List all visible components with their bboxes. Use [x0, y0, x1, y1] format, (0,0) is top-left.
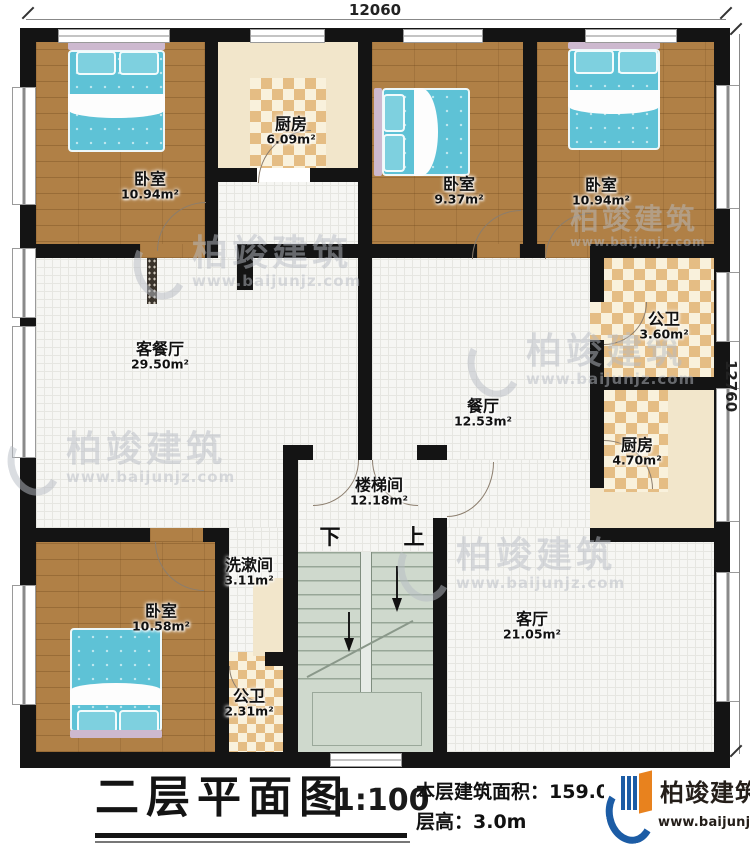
room-name: 卧室 [145, 603, 177, 620]
room-label: 公卫2.31m² [224, 688, 273, 719]
room-area: 3.60m² [639, 328, 688, 342]
room-name: 卧室 [134, 171, 166, 188]
double-bed [374, 88, 470, 176]
room-label: 客餐厅29.50m² [131, 341, 189, 372]
window [58, 29, 170, 43]
room-area: 6.09m² [266, 133, 315, 147]
wall-interior [203, 528, 215, 542]
room-label: 洗漱间3.11m² [224, 557, 273, 588]
room-area: 9.37m² [434, 193, 483, 207]
room-label: 卧室10.94m² [572, 177, 630, 208]
wall-interior [205, 42, 218, 258]
watermark: 柏竣建筑www.baijunjz.com [570, 206, 705, 249]
room-label: 卧室9.37m² [434, 176, 483, 207]
drawing-title: 二层平面图 [95, 776, 350, 820]
window [250, 29, 325, 43]
wall-interior [372, 244, 477, 258]
stair-handrail [360, 552, 372, 692]
room-label: 卧室10.94m² [121, 171, 179, 202]
room-name: 厨房 [275, 116, 307, 133]
room-area: 21.05m² [503, 628, 561, 642]
stair-arrow-stem [348, 612, 350, 638]
double-bed [568, 42, 660, 150]
stair-landing [312, 692, 422, 746]
stairs-up-label: 上 [404, 521, 425, 551]
room-label: 厨房6.09m² [266, 116, 315, 147]
watermark-url: www.baijunjz.com [570, 235, 705, 249]
window [403, 29, 483, 43]
room-name: 卧室 [443, 176, 475, 193]
wall-interior [218, 168, 257, 182]
tick-mark [720, 7, 733, 20]
wall-stairwell-right [433, 445, 447, 460]
window [12, 248, 36, 318]
room-name: 厨房 [621, 437, 653, 454]
dimension-label-right: 12760 [722, 360, 740, 412]
watermark: 柏竣建筑www.baijunjz.com [134, 236, 361, 300]
floor-plan-page: 12060 12760 [0, 0, 750, 845]
room-area: 10.94m² [572, 194, 630, 208]
window [12, 87, 36, 205]
stairs-down-label: 下 [320, 521, 341, 551]
room-label: 餐厅12.53m² [454, 398, 512, 429]
room-area: 10.58m² [132, 620, 190, 634]
tick-mark [22, 7, 35, 20]
double-bed [70, 628, 162, 746]
watermark-text: 柏竣建筑 [456, 538, 625, 574]
room-area: 4.70m² [612, 454, 661, 468]
floor-height-text: 层高：3.0m [416, 807, 526, 834]
room-label: 公卫3.60m² [639, 311, 688, 342]
watermark: 柏竣建筑www.baijunjz.com [8, 432, 235, 496]
room-label: 卧室10.58m² [132, 603, 190, 634]
room-area: 2.31m² [224, 705, 273, 719]
room-name: 楼梯间 [355, 477, 403, 494]
floor-plan-drawing: 12060 12760 [0, 0, 750, 770]
watermark-swoosh-icon [1, 426, 68, 501]
wall-interior [520, 244, 545, 258]
watermark-url: www.baijunjz.com [66, 468, 235, 486]
watermark-text: 柏竣建筑 [570, 206, 705, 235]
room-label: 客厅21.05m² [503, 611, 561, 642]
watermark: 柏竣建筑www.baijunjz.com [398, 538, 625, 602]
title-underline-thin [95, 841, 410, 843]
tick-mark [730, 745, 743, 758]
title-block: 二层平面图 1:100 本层建筑面积：159.06m² 层高：3.0m 柏竣建筑… [0, 770, 750, 845]
window [716, 272, 740, 342]
tick-mark [730, 23, 743, 36]
title-underline [95, 833, 407, 838]
watermark-swoosh-icon [461, 328, 528, 403]
watermark-url: www.baijunjz.com [526, 370, 695, 388]
double-bed [68, 42, 165, 152]
room-name: 卧室 [585, 177, 617, 194]
watermark-swoosh-icon [127, 230, 194, 305]
window [716, 572, 740, 702]
watermark-text: 柏竣建筑 [192, 236, 361, 272]
room-area: 3.11m² [224, 574, 273, 588]
room-area: 12.18m² [350, 494, 408, 508]
room-area: 12.53m² [454, 415, 512, 429]
watermark: 柏竣建筑www.baijunjz.com [468, 334, 695, 398]
room-name: 公卫 [648, 311, 680, 328]
wall-interior [265, 652, 283, 666]
window [330, 753, 402, 767]
wall-interior [590, 390, 604, 488]
room-name: 客厅 [516, 611, 548, 628]
floor-door-gap [150, 528, 203, 542]
room-label: 厨房4.70m² [612, 437, 661, 468]
window [716, 85, 740, 209]
watermark-text: 柏竣建筑 [66, 432, 235, 468]
window [12, 585, 36, 705]
dimension-line-top [26, 19, 726, 20]
wall-interior [590, 258, 604, 302]
room-name: 餐厅 [467, 398, 499, 415]
window [585, 29, 677, 43]
wall-interior [20, 528, 150, 542]
brand-name: 柏竣建筑 [660, 773, 750, 808]
room-name: 洗漱间 [225, 557, 273, 574]
brand-website: www.baijunjz.com [658, 815, 750, 830]
wall-interior [310, 168, 358, 182]
room-name: 公卫 [233, 688, 265, 705]
washroom-counter [253, 578, 283, 656]
room-area: 29.50m² [131, 358, 189, 372]
watermark-url: www.baijunjz.com [456, 574, 625, 592]
wall-stairwell-top [283, 445, 313, 460]
room-label: 楼梯间12.18m² [350, 477, 408, 508]
room-area: 10.94m² [121, 188, 179, 202]
room-name: 客餐厅 [136, 341, 184, 358]
logo-building-orange-icon [639, 770, 652, 813]
dimension-label-top: 12060 [349, 1, 401, 19]
wall-interior [20, 244, 140, 258]
wall-stairwell-left [283, 445, 298, 752]
logo-mark [604, 770, 658, 838]
wall-interior [523, 42, 537, 258]
watermark-url: www.baijunjz.com [192, 272, 361, 290]
stair-direction-arrow [344, 638, 354, 652]
logo-building-icon [621, 776, 637, 810]
